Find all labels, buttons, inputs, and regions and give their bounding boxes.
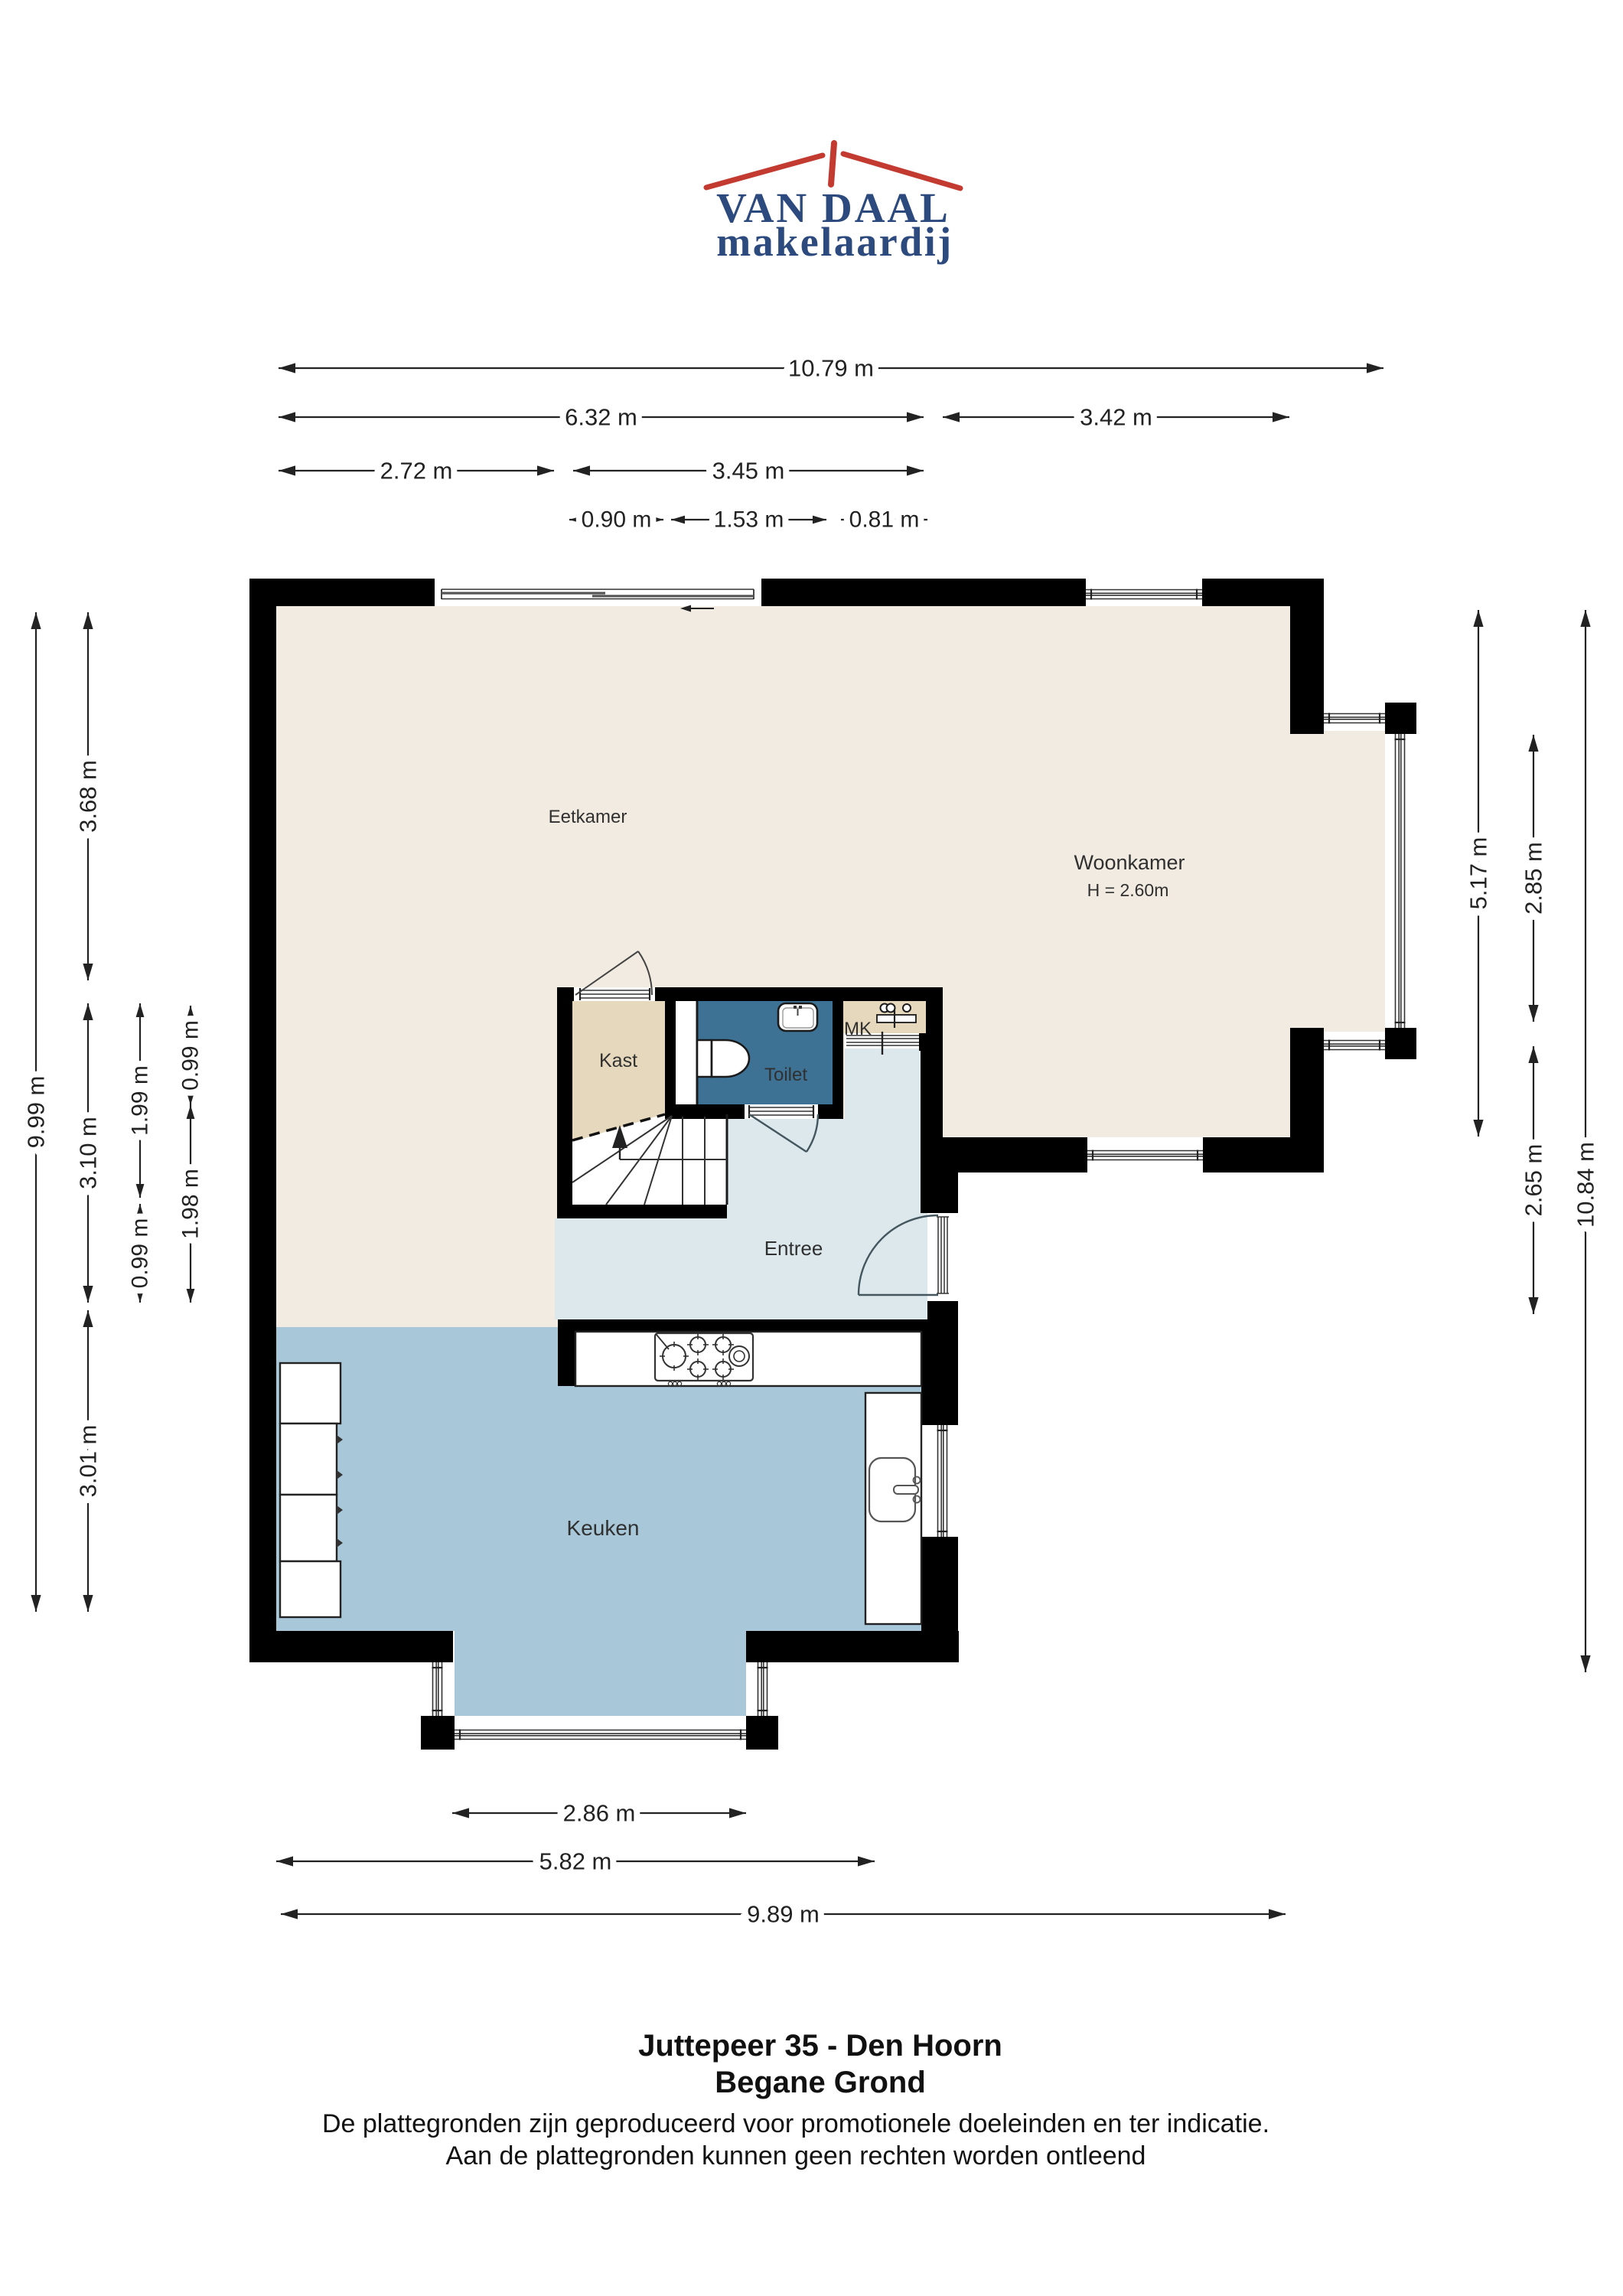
svg-text:0.99 m: 0.99 m: [178, 1020, 204, 1091]
svg-text:9.99 m: 9.99 m: [23, 1076, 50, 1149]
svg-text:3.42 m: 3.42 m: [1080, 404, 1152, 431]
svg-text:Juttepeer 35 - Den Hoorn: Juttepeer 35 - Den Hoorn: [638, 2029, 1002, 2063]
svg-text:5.17 m: 5.17 m: [1465, 837, 1492, 910]
svg-text:2.85 m: 2.85 m: [1520, 842, 1547, 915]
svg-text:0.81 m: 0.81 m: [849, 507, 920, 533]
svg-text:2.72 m: 2.72 m: [380, 458, 453, 484]
svg-text:0.90 m: 0.90 m: [582, 507, 652, 533]
svg-text:Woonkamer: Woonkamer: [1074, 851, 1185, 874]
svg-text:3.45 m: 3.45 m: [712, 458, 785, 484]
svg-text:6.32 m: 6.32 m: [565, 404, 637, 431]
svg-text:MK: MK: [844, 1019, 872, 1039]
svg-text:1.98 m: 1.98 m: [178, 1169, 204, 1239]
svg-text:5.82 m: 5.82 m: [539, 1848, 612, 1875]
svg-text:3.68 m: 3.68 m: [75, 760, 102, 833]
svg-text:2.86 m: 2.86 m: [563, 1800, 636, 1827]
svg-text:H = 2.60m: H = 2.60m: [1087, 880, 1169, 900]
svg-text:0.99 m: 0.99 m: [128, 1218, 153, 1289]
svg-text:1.99 m: 1.99 m: [128, 1065, 153, 1136]
svg-text:3.01 m: 3.01 m: [75, 1425, 102, 1498]
svg-text:3.10 m: 3.10 m: [75, 1117, 102, 1189]
svg-text:Aan de plattegronden kunnen ge: Aan de plattegronden kunnen geen rechten…: [446, 2141, 1146, 2170]
svg-text:1.53 m: 1.53 m: [714, 507, 784, 533]
svg-text:Eetkamer: Eetkamer: [549, 807, 627, 827]
svg-text:Begane Grond: Begane Grond: [715, 2066, 926, 2099]
svg-text:10.84 m: 10.84 m: [1572, 1142, 1599, 1228]
svg-text:De plattegronden zijn geproduc: De plattegronden zijn geproduceerd voor …: [322, 2109, 1269, 2138]
svg-text:9.89 m: 9.89 m: [747, 1901, 820, 1928]
svg-text:10.79 m: 10.79 m: [788, 355, 874, 382]
svg-text:makelaardij: makelaardij: [716, 219, 953, 265]
svg-text:Toilet: Toilet: [764, 1065, 807, 1085]
svg-text:Keuken: Keuken: [567, 1516, 640, 1540]
svg-text:Entree: Entree: [764, 1237, 823, 1260]
svg-text:2.65 m: 2.65 m: [1520, 1144, 1547, 1217]
svg-text:Kast: Kast: [599, 1050, 637, 1071]
